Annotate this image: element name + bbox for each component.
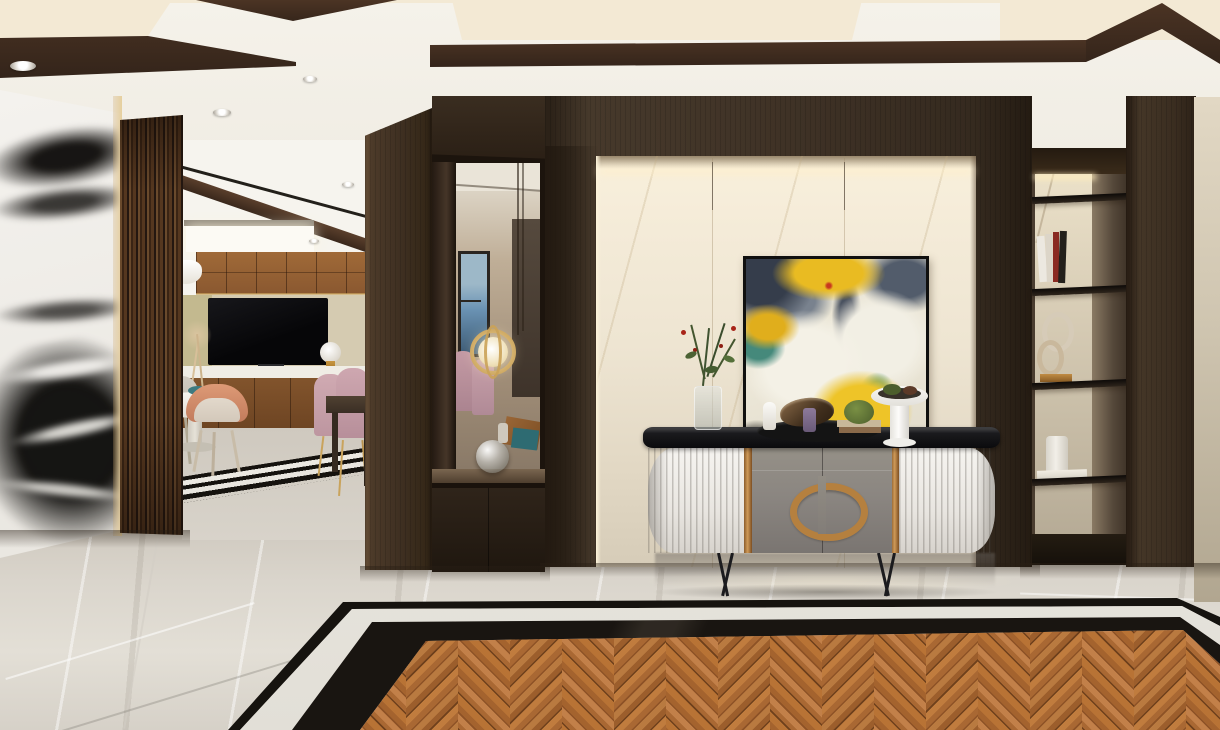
handle-split [818, 476, 826, 534]
pedestal-foot [883, 438, 916, 447]
ring-pendant-inner [484, 325, 502, 379]
light-cove [186, 226, 314, 252]
console-sideboard [643, 384, 1000, 594]
niche-header [1032, 148, 1130, 174]
cabinet-seam [488, 488, 489, 572]
wood-grain [365, 108, 432, 570]
pendant-cord [522, 163, 524, 331]
floor-shadow [360, 566, 550, 582]
coffer-band-center [430, 38, 1090, 68]
pedestal-stem [890, 404, 909, 442]
window-mullion [461, 300, 481, 302]
beige-wall-right [1194, 97, 1220, 602]
coffer-panel-center [452, 0, 862, 42]
berry [719, 344, 723, 348]
floor-shadow [1020, 563, 1220, 579]
white-cup [1046, 436, 1068, 472]
hanging-wire [844, 162, 845, 210]
stacked-book [839, 427, 881, 433]
hanging-wire [712, 162, 713, 210]
perfume-bottle [803, 408, 816, 432]
ring-sculpture-small [1037, 340, 1064, 376]
glass-vase [694, 386, 722, 430]
leaf [722, 354, 735, 364]
unit-base-cabinet [432, 488, 545, 572]
fluted-side-right [899, 448, 995, 553]
berry [681, 330, 686, 335]
side-table-leg [332, 412, 338, 472]
television [208, 298, 328, 365]
globe-lamp [320, 342, 341, 363]
mirror-display-unit [432, 96, 545, 572]
berry [731, 326, 736, 331]
downlight-icon [213, 109, 231, 116]
berry-branches [671, 322, 747, 388]
moss-plant [844, 400, 874, 424]
niche-cove-glow [598, 166, 974, 176]
bronze-oval-handle [790, 483, 868, 541]
glass-sphere [476, 440, 509, 473]
downlight-icon [309, 239, 319, 243]
side-shading [648, 448, 744, 553]
leaf [684, 350, 697, 360]
floor-shadow [0, 530, 190, 548]
salmon-chair-seat [194, 398, 240, 422]
walnut-column-right [1126, 96, 1196, 567]
mirror-teal-book [511, 427, 539, 450]
bowl-decor [903, 386, 917, 395]
unit-left-frame [432, 162, 456, 474]
unit-header [432, 96, 545, 162]
coffer-band-left-top [190, 0, 400, 24]
fluted-side-left [648, 448, 744, 553]
bronze-trim [891, 448, 899, 553]
downlight-icon [10, 61, 36, 71]
pendant-cord [517, 163, 519, 335]
bowl-greenery [883, 384, 901, 395]
shelf-light-glow [1034, 174, 1096, 180]
panda-marble-wall [0, 90, 121, 558]
downlight-icon [342, 182, 354, 187]
marble-vein [0, 293, 121, 329]
niche-base [1032, 534, 1130, 565]
downlight-icon [303, 76, 317, 82]
walnut-slat-screen [120, 115, 183, 535]
walnut-pillar [365, 108, 432, 570]
bronze-trim [744, 448, 752, 553]
white-figurine [763, 402, 776, 430]
interior-render [0, 0, 1220, 730]
console-leg [884, 553, 896, 597]
drawer-seam [752, 470, 892, 471]
side-shading [899, 448, 995, 553]
wall-side-shade [545, 146, 598, 567]
mirror [456, 163, 540, 469]
coffer-panel-left [0, 0, 180, 40]
niche-side-shade [1092, 154, 1130, 546]
shelving-niche [1032, 148, 1130, 565]
wood-grain [1126, 96, 1196, 567]
mirror-white-object [498, 423, 508, 443]
